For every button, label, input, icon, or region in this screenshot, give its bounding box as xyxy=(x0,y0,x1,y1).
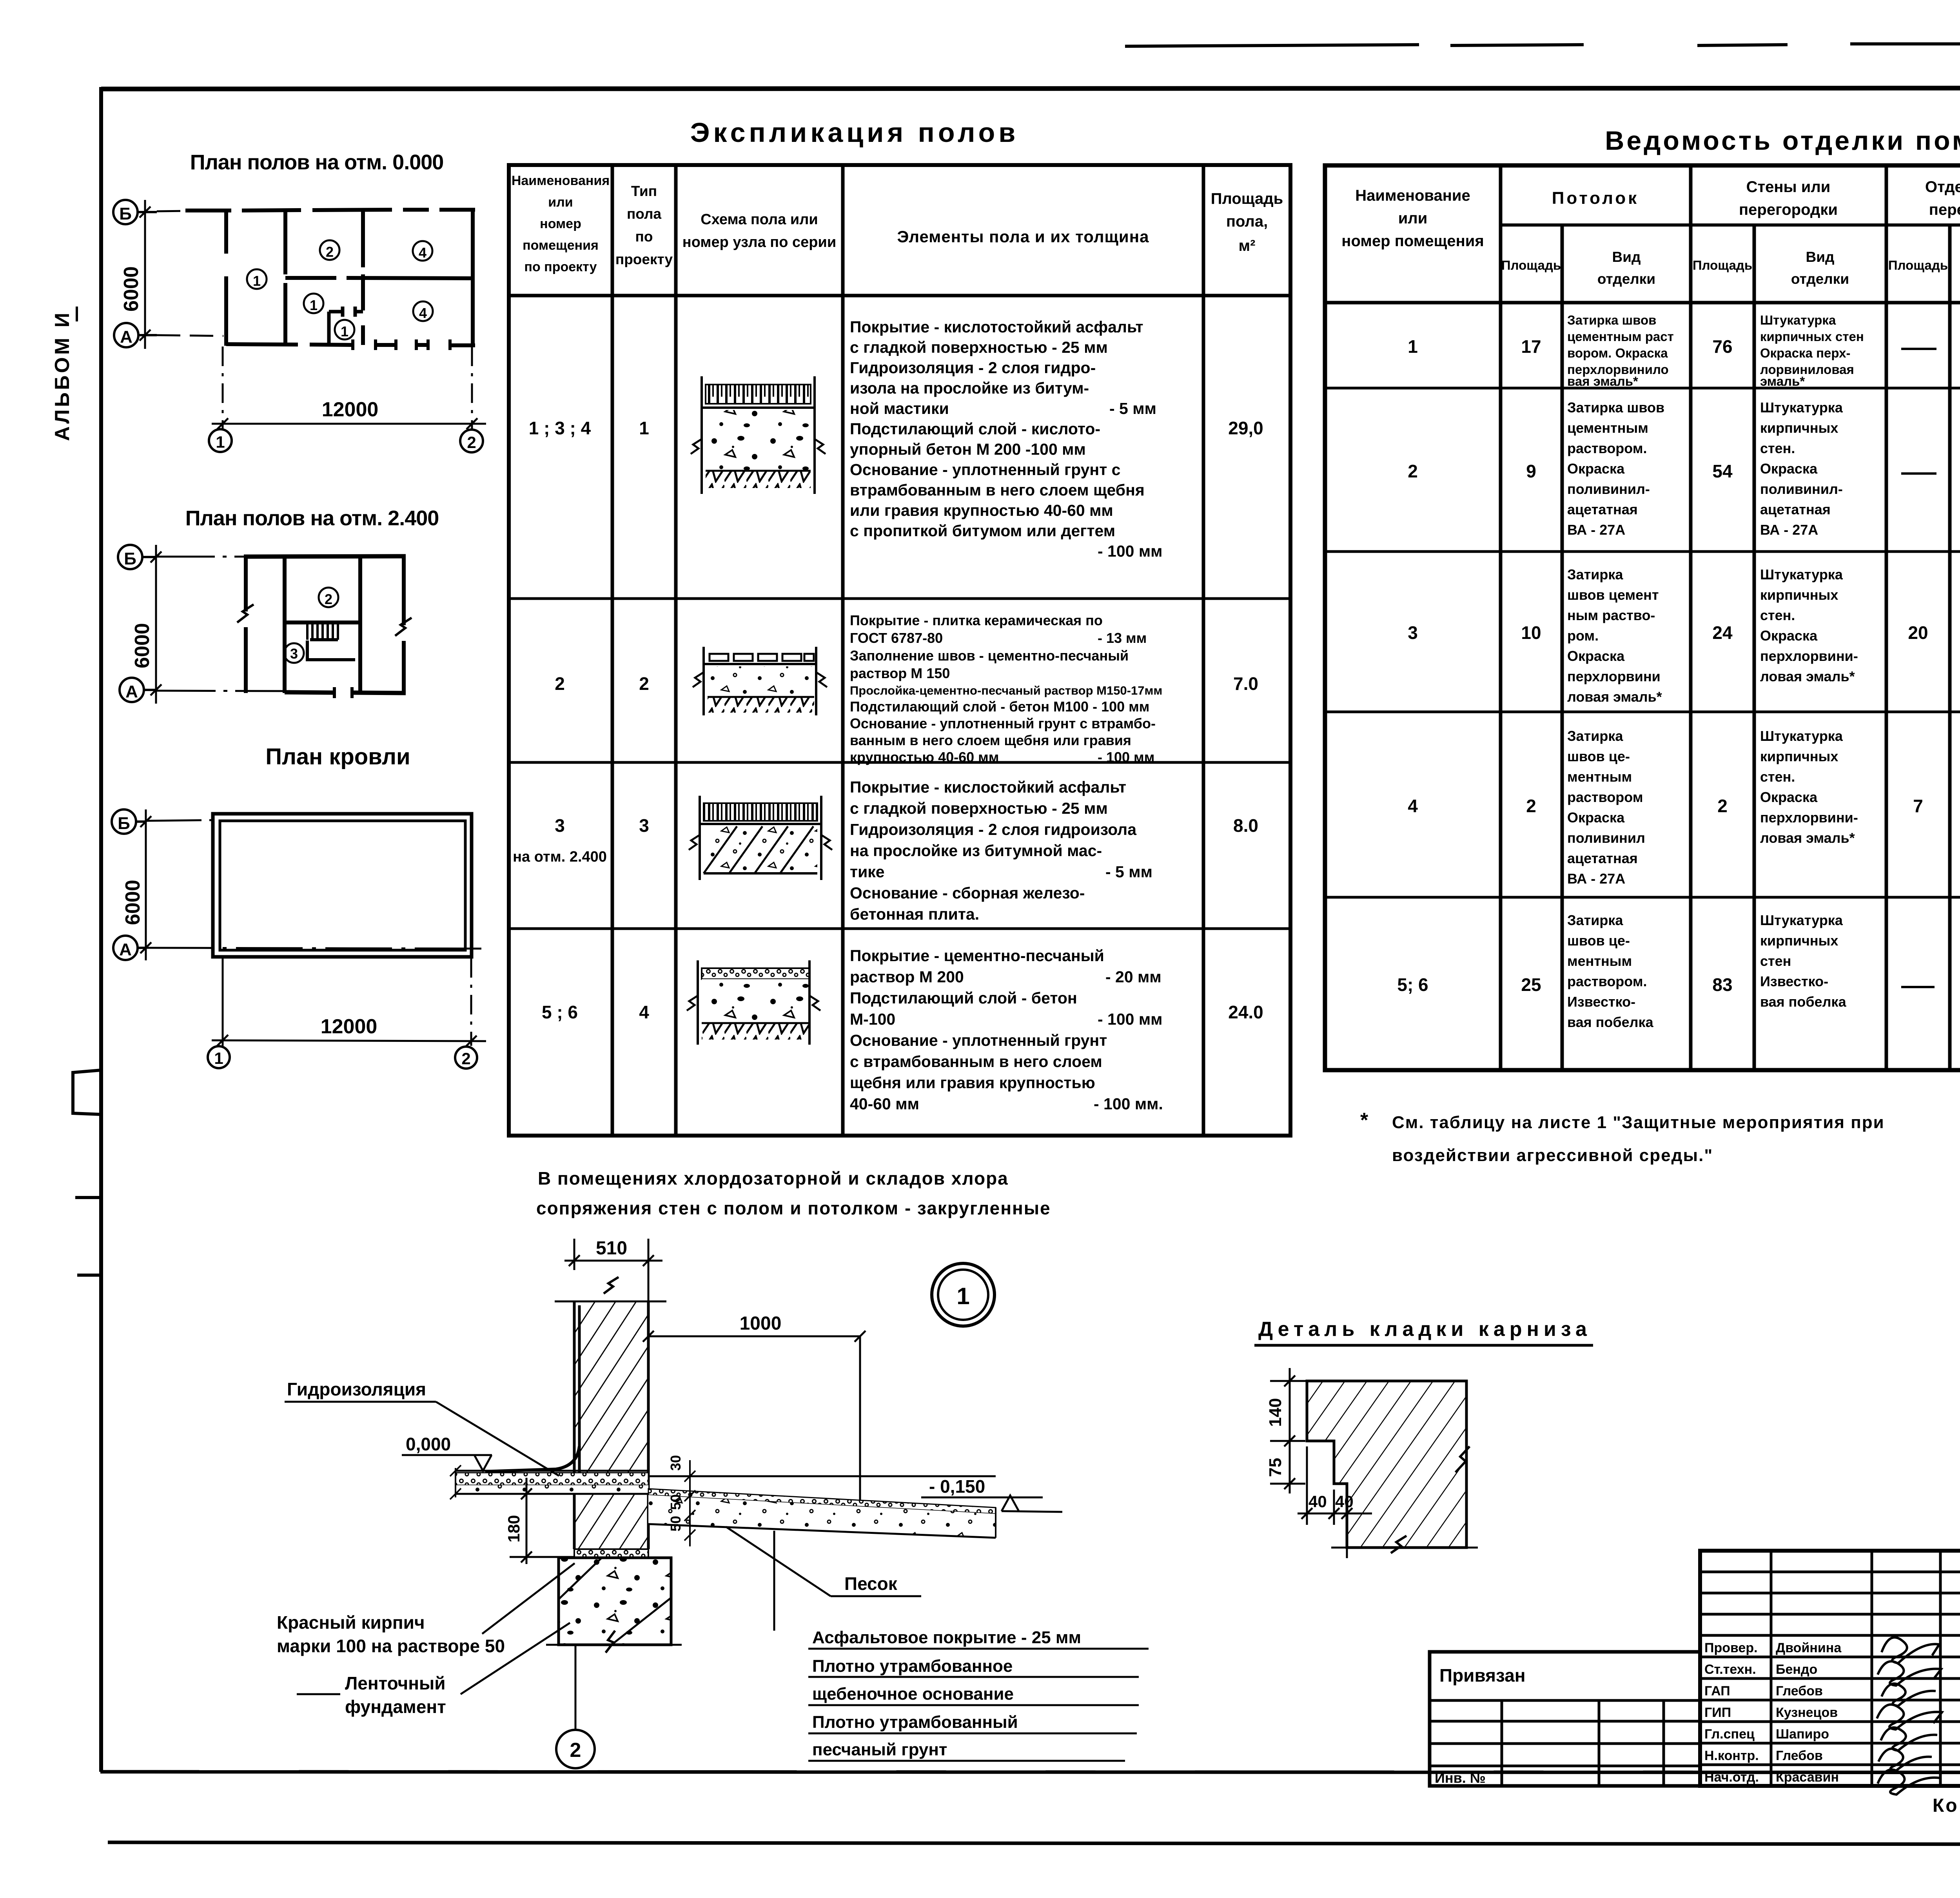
svg-text:- 0,150: - 0,150 xyxy=(929,1476,985,1497)
svg-text:Заполнение швов - цементно-пес: Заполнение швов - цементно-песчаный xyxy=(850,648,1129,664)
svg-text:2: 2 xyxy=(1526,796,1536,816)
svg-text:вая побелка: вая побелка xyxy=(1567,1014,1654,1030)
svg-text:отделки: отделки xyxy=(1791,271,1849,287)
svg-text:Красавин: Красавин xyxy=(1776,1770,1839,1785)
svg-text:6000: 6000 xyxy=(122,880,144,925)
svg-text:Гидроизоляция: Гидроизоляция xyxy=(287,1379,426,1399)
svg-text:ловая эмаль*: ловая эмаль* xyxy=(1567,689,1662,705)
svg-text:щебеночное основание: щебеночное основание xyxy=(812,1684,1014,1704)
svg-text:А: А xyxy=(125,682,138,701)
svg-text:Тип: Тип xyxy=(631,183,657,199)
svg-text:50: 50 xyxy=(668,1494,684,1510)
svg-text:стен.: стен. xyxy=(1760,769,1795,785)
svg-text:крупностью 40-60 мм: крупностью 40-60 мм xyxy=(850,749,999,765)
svg-text:Прослойка-цементно-песчаный ра: Прослойка-цементно-песчаный раствор М150… xyxy=(850,684,1162,697)
svg-text:раствором.: раствором. xyxy=(1567,440,1647,456)
svg-text:или: или xyxy=(548,195,573,210)
svg-text:- 5 мм: - 5 мм xyxy=(1105,863,1152,881)
svg-text:пола: пола xyxy=(627,206,662,222)
svg-text:25: 25 xyxy=(1521,974,1541,995)
svg-text:Деталь кладки карниза: Деталь кладки карниза xyxy=(1258,1318,1592,1341)
svg-text:проекту: проекту xyxy=(615,251,673,267)
svg-text:ментным: ментным xyxy=(1567,953,1632,969)
svg-text:изола на прослойке из битум-: изола на прослойке из битум- xyxy=(850,379,1089,397)
svg-text:2: 2 xyxy=(1717,796,1728,816)
svg-text:Площадь: Площадь xyxy=(1693,258,1752,272)
svg-text:7.0: 7.0 xyxy=(1233,673,1258,694)
svg-text:Наименования: Наименования xyxy=(512,173,610,188)
svg-text:швов це-: швов це- xyxy=(1567,933,1630,949)
svg-text:Штукатурка: Штукатурка xyxy=(1760,566,1843,582)
svg-text:пола,: пола, xyxy=(1226,213,1268,230)
svg-text:Гидроизоляция - 2 слоя гидроиз: Гидроизоляция - 2 слоя гидроизола xyxy=(850,820,1137,838)
svg-text:Красный кирпич: Красный кирпич xyxy=(277,1612,425,1633)
svg-text:40-60 мм: 40-60 мм xyxy=(850,1095,919,1113)
svg-text:перегородки: перегородки xyxy=(1739,201,1838,218)
svg-text:Окраска: Окраска xyxy=(1760,789,1818,805)
svg-text:6000: 6000 xyxy=(120,266,143,312)
svg-text:1000: 1000 xyxy=(740,1313,782,1334)
svg-text:Двойнина: Двойнина xyxy=(1776,1640,1842,1655)
svg-text:ной мастики: ной мастики xyxy=(850,399,949,417)
svg-text:эмаль*: эмаль* xyxy=(1760,374,1805,388)
svg-text:А: А xyxy=(120,327,132,347)
svg-text:на прослойке из битумной мас-: на прослойке из битумной мас- xyxy=(850,842,1102,860)
svg-text:Вид: Вид xyxy=(1612,249,1641,265)
svg-text:АЛЬБОМ И: АЛЬБОМ И xyxy=(51,310,74,441)
svg-text:кирпичных: кирпичных xyxy=(1760,587,1838,603)
svg-text:Затирка швов: Затирка швов xyxy=(1567,313,1656,327)
svg-text:0,000: 0,000 xyxy=(406,1434,451,1454)
svg-text:2: 2 xyxy=(326,244,334,260)
svg-text:или: или xyxy=(1398,210,1428,227)
svg-text:30: 30 xyxy=(668,1455,684,1471)
svg-text:2: 2 xyxy=(639,673,649,694)
svg-text:раствором: раствором xyxy=(1567,789,1643,805)
svg-text:по проекту: по проекту xyxy=(524,259,597,274)
svg-text:стен: стен xyxy=(1760,953,1791,969)
svg-text:17: 17 xyxy=(1521,336,1541,357)
svg-text:Потолок: Потолок xyxy=(1552,189,1639,208)
svg-text:бетонная плита.: бетонная плита. xyxy=(850,905,979,923)
svg-text:2: 2 xyxy=(570,1739,581,1762)
svg-text:стен.: стен. xyxy=(1760,440,1795,456)
svg-text:марки 100 на растворе 50: марки 100 на растворе 50 xyxy=(277,1636,505,1656)
svg-text:ловая эмаль*: ловая эмаль* xyxy=(1760,830,1855,846)
svg-text:перхлорвини-: перхлорвини- xyxy=(1760,809,1858,826)
svg-text:- 5 мм: - 5 мм xyxy=(1109,399,1156,417)
svg-text:или гравия крупностью 40-60 мм: или гравия крупностью 40-60 мм xyxy=(850,501,1113,519)
svg-text:54: 54 xyxy=(1712,461,1733,481)
svg-text:В помещениях хлордозаторной и: В помещениях хлордозаторной и складов хл… xyxy=(538,1168,1009,1189)
svg-text:раствором.: раствором. xyxy=(1567,973,1647,989)
svg-text:Провер.: Провер. xyxy=(1704,1640,1758,1655)
svg-text:Б: Б xyxy=(124,549,136,568)
svg-text:Бендо: Бендо xyxy=(1776,1662,1817,1677)
svg-text:1: 1 xyxy=(956,1283,969,1309)
svg-text:Глебов: Глебов xyxy=(1776,1684,1823,1698)
svg-text:ГОСТ 6787-80: ГОСТ 6787-80 xyxy=(850,630,943,646)
svg-text:кирпичных: кирпичных xyxy=(1760,748,1838,764)
svg-text:1: 1 xyxy=(216,433,225,451)
svg-text:Подстилающий слой - бетон: Подстилающий слой - бетон xyxy=(850,989,1077,1007)
svg-text:поливинил: поливинил xyxy=(1567,830,1645,846)
svg-text:сопряжения стен с полом и пото: сопряжения стен с полом и потолком - зак… xyxy=(536,1198,1051,1218)
svg-text:2: 2 xyxy=(461,1049,470,1068)
svg-text:510: 510 xyxy=(596,1238,627,1259)
svg-text:Покрытие - плитка керамическая: Покрытие - плитка керамическая по xyxy=(850,612,1103,628)
svg-text:Песок: Песок xyxy=(844,1573,898,1594)
svg-text:ацетатная: ацетатная xyxy=(1567,501,1638,517)
svg-text:номер: номер xyxy=(540,216,581,231)
svg-text:4: 4 xyxy=(419,245,426,261)
svg-text:Покрытие - кислотостойкий асфа: Покрытие - кислотостойкий асфальт xyxy=(850,318,1143,336)
svg-text:цементным раст: цементным раст xyxy=(1567,329,1674,344)
svg-text:с пропиткой битумом или дегтем: с пропиткой битумом или дегтем xyxy=(850,522,1115,540)
svg-text:на отм. 2.400: на отм. 2.400 xyxy=(513,849,607,865)
svg-text:щебня или гравия крупностью: щебня или гравия крупностью xyxy=(850,1074,1095,1092)
svg-text:цементным: цементным xyxy=(1567,420,1648,436)
svg-text:номер узла по серии: номер узла по серии xyxy=(682,234,836,250)
svg-text:1: 1 xyxy=(214,1049,223,1067)
svg-text:ным раство-: ным раство- xyxy=(1567,607,1655,623)
svg-text:Затирка: Затирка xyxy=(1567,912,1623,928)
svg-text:Гл.спец: Гл.спец xyxy=(1704,1727,1755,1742)
svg-text:Окраска: Окраска xyxy=(1567,461,1625,477)
svg-text:3: 3 xyxy=(1408,622,1418,643)
svg-text:План полов на отм. 0.000: План полов на отм. 0.000 xyxy=(190,151,444,174)
svg-text:перегородок (панель): перегородок (панель) xyxy=(1929,201,1960,218)
svg-text:Вид: Вид xyxy=(1806,249,1835,265)
svg-text:12000: 12000 xyxy=(321,1015,377,1038)
svg-text:- 100 мм: - 100 мм xyxy=(1098,749,1154,765)
svg-text:Экспликация полов: Экспликация полов xyxy=(690,117,1019,148)
svg-text:ВА - 27А: ВА - 27А xyxy=(1567,871,1625,887)
svg-text:с втрамбованным в него слоем: с втрамбованным в него слоем xyxy=(850,1052,1102,1071)
svg-text:втрамбованным в него слоем щеб: втрамбованным в него слоем щебня xyxy=(850,481,1145,499)
svg-text:180: 180 xyxy=(505,1515,523,1542)
svg-text:1: 1 xyxy=(253,273,261,289)
svg-text:Штукатурка: Штукатурка xyxy=(1760,728,1843,744)
svg-text:фундамент: фундамент xyxy=(345,1697,446,1717)
svg-text:Затирка швов: Затирка швов xyxy=(1567,399,1664,416)
svg-text:10: 10 xyxy=(1521,622,1541,643)
svg-text:- 13 мм: - 13 мм xyxy=(1098,630,1147,646)
svg-text:Кузнецов: Кузнецов xyxy=(1776,1705,1838,1720)
svg-text:12000: 12000 xyxy=(322,398,379,421)
svg-text:Плотно утрамбованный: Плотно утрамбованный xyxy=(812,1713,1018,1732)
svg-text:Затирка: Затирка xyxy=(1567,566,1623,582)
svg-text:83: 83 xyxy=(1712,974,1732,995)
svg-text:Затирка: Затирка xyxy=(1567,728,1623,744)
svg-text:Известко-: Известко- xyxy=(1760,973,1828,989)
svg-text:4: 4 xyxy=(419,305,427,321)
svg-text:См. таблицу на листе 1 "Защитн: См. таблицу на листе 1 "Защитные меропри… xyxy=(1392,1113,1885,1132)
svg-text:Отделка низа стен или: Отделка низа стен или xyxy=(1925,178,1960,196)
svg-text:ГИП: ГИП xyxy=(1704,1705,1731,1720)
svg-text:Б: Б xyxy=(119,204,132,223)
svg-text:План полов на отм. 2.400: План полов на отм. 2.400 xyxy=(185,506,439,530)
svg-text:1 ; 3 ; 4: 1 ; 3 ; 4 xyxy=(529,418,591,438)
svg-text:Основание - уплотненный грунт: Основание - уплотненный грунт с втрамбо- xyxy=(850,715,1156,731)
svg-text:перхлорвини: перхлорвини xyxy=(1567,668,1661,684)
svg-text:перхлорвини-: перхлорвини- xyxy=(1760,648,1858,664)
svg-text:- 20 мм: - 20 мм xyxy=(1105,968,1161,986)
svg-text:40: 40 xyxy=(1308,1492,1327,1511)
svg-text:3: 3 xyxy=(290,646,298,662)
svg-text:Инв. №: Инв. № xyxy=(1435,1770,1486,1786)
svg-text:Гидроизоляция - 2 слоя гидро-: Гидроизоляция - 2 слоя гидро- xyxy=(850,359,1096,377)
svg-text:Н.контр.: Н.контр. xyxy=(1704,1748,1759,1763)
svg-text:Наименование: Наименование xyxy=(1355,187,1470,204)
svg-text:40: 40 xyxy=(1335,1492,1354,1511)
svg-text:Ведомость отделки помещений: Ведомость отделки помещений xyxy=(1605,126,1960,156)
svg-text:упорный бетон М 200 -100 мм: упорный бетон М 200 -100 мм xyxy=(850,440,1086,458)
svg-text:ром.: ром. xyxy=(1567,628,1599,644)
svg-text:ВА - 27А: ВА - 27А xyxy=(1567,522,1625,538)
svg-text:29,0: 29,0 xyxy=(1228,418,1263,438)
svg-text:2: 2 xyxy=(555,673,565,694)
svg-text:раствор М 200: раствор М 200 xyxy=(850,968,964,986)
svg-text:2: 2 xyxy=(467,433,476,452)
svg-text:Окраска перх-: Окраска перх- xyxy=(1760,346,1850,360)
svg-text:по: по xyxy=(635,229,653,245)
svg-text:с гладкой поверхностью - 25 мм: с гладкой поверхностью - 25 мм xyxy=(850,799,1108,817)
svg-text:швов це-: швов це- xyxy=(1567,748,1630,764)
svg-text:поливинил-: поливинил- xyxy=(1760,481,1843,497)
svg-text:20: 20 xyxy=(1908,622,1928,643)
svg-text:вая эмаль*: вая эмаль* xyxy=(1567,374,1638,388)
svg-text:Основание - сборная железо-: Основание - сборная железо- xyxy=(850,884,1085,902)
svg-text:м²: м² xyxy=(1239,237,1256,254)
svg-text:1: 1 xyxy=(341,323,348,339)
svg-text:3: 3 xyxy=(555,815,565,836)
svg-text:Подстилающий слой - кислото-: Подстилающий слой - кислото- xyxy=(850,420,1100,438)
svg-text:2: 2 xyxy=(325,591,332,607)
svg-text:Штукатурка: Штукатурка xyxy=(1760,912,1843,928)
svg-text:Окраска: Окраска xyxy=(1760,628,1818,644)
svg-text:75: 75 xyxy=(1266,1458,1285,1477)
svg-text:7: 7 xyxy=(1913,796,1923,816)
svg-text:4: 4 xyxy=(639,1002,649,1022)
svg-text:вором. Окраска: вором. Окраска xyxy=(1567,346,1668,360)
svg-text:Глебов: Глебов xyxy=(1776,1748,1823,1763)
svg-text:Плотно утрамбованное: Плотно утрамбованное xyxy=(812,1657,1013,1676)
svg-text:ВА - 27А: ВА - 27А xyxy=(1760,522,1818,538)
svg-text:Площадь: Площадь xyxy=(1888,258,1948,272)
svg-text:1: 1 xyxy=(639,418,649,438)
svg-text:Ленточный: Ленточный xyxy=(345,1673,446,1693)
svg-text:ацетатная: ацетатная xyxy=(1567,850,1638,866)
svg-text:Б: Б xyxy=(118,814,130,833)
svg-text:кирпичных: кирпичных xyxy=(1760,933,1838,949)
svg-text:воздействии агрессивной среды.: воздействии агрессивной среды." xyxy=(1392,1146,1713,1165)
svg-text:Основание - уплотненный грунт: Основание - уплотненный грунт с xyxy=(850,461,1120,479)
svg-text:кирпичных стен: кирпичных стен xyxy=(1760,329,1864,344)
svg-text:1: 1 xyxy=(1408,336,1418,357)
svg-text:50: 50 xyxy=(668,1516,684,1531)
svg-text:Нач.отд.: Нач.отд. xyxy=(1704,1770,1759,1785)
svg-text:Окраска: Окраска xyxy=(1567,809,1625,826)
svg-text:ГАП: ГАП xyxy=(1704,1684,1730,1698)
svg-text:раствор М 150: раствор М 150 xyxy=(850,665,950,681)
svg-text:6000: 6000 xyxy=(131,623,154,668)
svg-text:ментным: ментным xyxy=(1567,769,1632,785)
svg-text:5; 6: 5; 6 xyxy=(1397,974,1428,995)
svg-text:Окраска: Окраска xyxy=(1567,648,1625,664)
svg-text:отделки: отделки xyxy=(1597,271,1655,287)
svg-text:24.0: 24.0 xyxy=(1228,1002,1263,1022)
svg-text:4: 4 xyxy=(1408,796,1418,816)
svg-text:тике: тике xyxy=(850,863,885,881)
svg-text:ванным в него слоем щебня или: ванным в него слоем щебня или гравия xyxy=(850,732,1131,748)
svg-text:Ст.техн.: Ст.техн. xyxy=(1704,1662,1756,1677)
svg-text:вая побелка: вая побелка xyxy=(1760,994,1847,1010)
svg-text:стен.: стен. xyxy=(1760,607,1795,623)
svg-text:Асфальтовое покрытие - 25 мм: Асфальтовое покрытие - 25 мм xyxy=(812,1628,1081,1647)
svg-text:песчаный грунт: песчаный грунт xyxy=(812,1740,947,1759)
svg-text:кирпичных: кирпичных xyxy=(1760,420,1838,436)
svg-text:швов цемент: швов цемент xyxy=(1567,587,1659,603)
svg-text:А: А xyxy=(119,940,132,959)
svg-text:Схема пола или: Схема пола или xyxy=(701,211,818,228)
svg-text:8.0: 8.0 xyxy=(1233,815,1258,836)
svg-text:- 100 мм: - 100 мм xyxy=(1098,1010,1163,1028)
svg-text:ловая эмаль*: ловая эмаль* xyxy=(1760,668,1855,684)
svg-text:поливинил-: поливинил- xyxy=(1567,481,1650,497)
svg-text:Основание - уплотненный грунт: Основание - уплотненный грунт xyxy=(850,1031,1107,1049)
svg-text:помещения: помещения xyxy=(523,238,599,253)
svg-text:Известко-: Известко- xyxy=(1567,994,1635,1010)
svg-text:Элементы пола и их толщина: Элементы пола и их толщина xyxy=(897,227,1149,246)
svg-text:3: 3 xyxy=(639,815,649,836)
svg-text:Стены или: Стены или xyxy=(1746,178,1831,196)
svg-text:М-100: М-100 xyxy=(850,1010,895,1028)
svg-text:9: 9 xyxy=(1526,461,1536,481)
svg-text:Штукатурка: Штукатурка xyxy=(1760,399,1843,416)
svg-text:76: 76 xyxy=(1712,336,1732,357)
svg-text:*: * xyxy=(1360,1109,1368,1132)
svg-text:24: 24 xyxy=(1712,622,1733,643)
svg-text:Шапиро: Шапиро xyxy=(1776,1727,1829,1742)
svg-text:Площадь: Площадь xyxy=(1211,190,1283,207)
svg-text:с гладкой поверхностью - 25 мм: с гладкой поверхностью - 25 мм xyxy=(850,338,1108,356)
svg-text:Покрытие - цементно-песчаный: Покрытие - цементно-песчаный xyxy=(850,947,1104,965)
svg-text:1: 1 xyxy=(310,297,318,313)
svg-text:План кровли: План кровли xyxy=(265,744,410,769)
svg-text:- 100 мм: - 100 мм xyxy=(1098,542,1163,560)
svg-text:Штукатурка: Штукатурка xyxy=(1760,313,1836,327)
svg-text:5 ; 6: 5 ; 6 xyxy=(542,1002,578,1022)
svg-text:Привязан: Привязан xyxy=(1439,1665,1526,1686)
svg-text:ацетатная: ацетатная xyxy=(1760,501,1831,517)
svg-text:- 100 мм.: - 100 мм. xyxy=(1094,1095,1163,1113)
svg-text:Покрытие - кислостойкий асфаль: Покрытие - кислостойкий асфальт xyxy=(850,778,1126,796)
svg-text:Копировал Еремченко: Копировал Еремченко xyxy=(1933,1795,1960,1816)
svg-text:номер помещения: номер помещения xyxy=(1341,232,1484,250)
svg-text:Окраска: Окраска xyxy=(1760,461,1818,477)
svg-text:Подстилающий слой - бетон М100: Подстилающий слой - бетон М100 - 100 мм xyxy=(850,699,1149,715)
svg-text:140: 140 xyxy=(1266,1398,1285,1427)
svg-text:2: 2 xyxy=(1408,461,1418,481)
svg-text:Площадь: Площадь xyxy=(1501,258,1561,272)
